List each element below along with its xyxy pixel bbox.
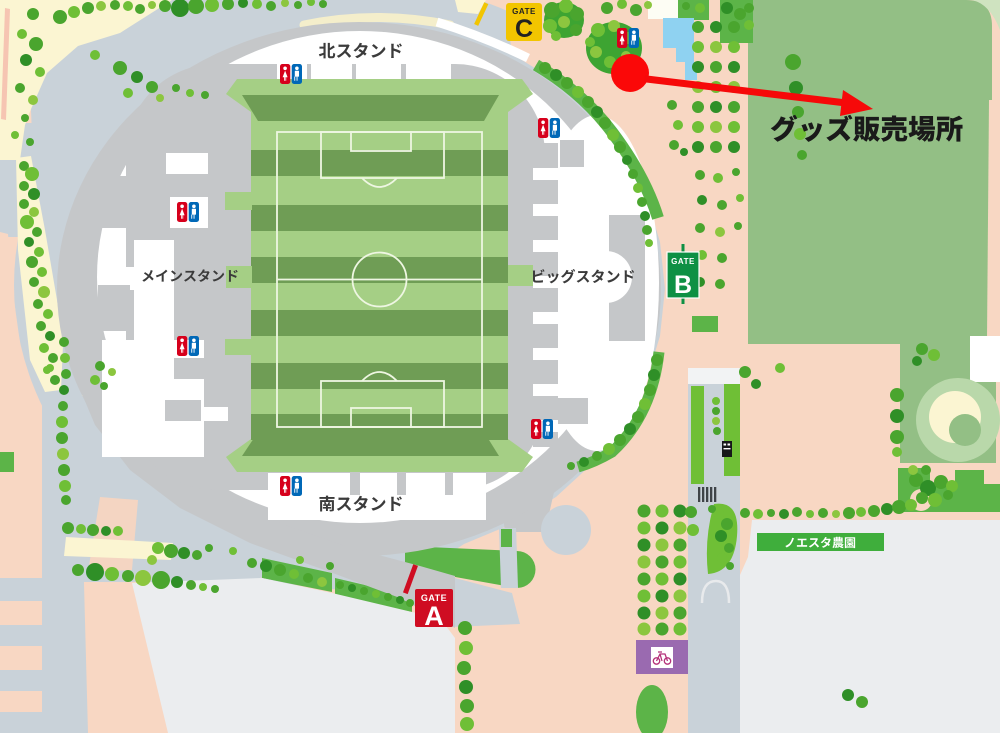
- svg-text:A: A: [424, 601, 444, 631]
- svg-text:GATE: GATE: [671, 257, 695, 266]
- svg-text:B: B: [674, 271, 692, 299]
- svg-text:C: C: [515, 15, 533, 43]
